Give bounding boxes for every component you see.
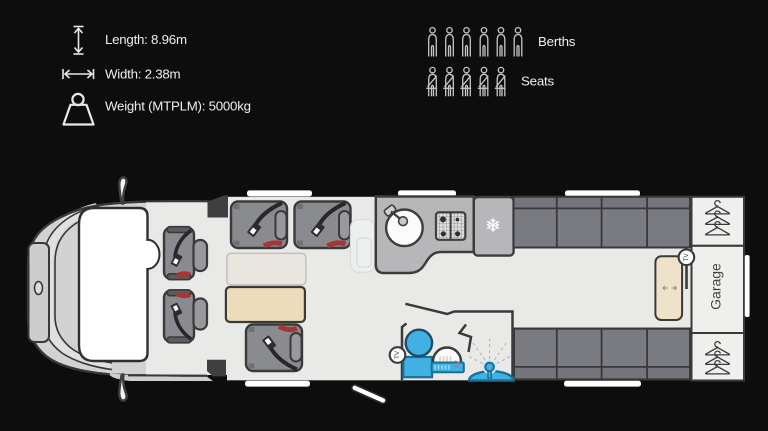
- svg-text:Berths: Berths: [538, 34, 576, 49]
- svg-text:TV: TV: [394, 350, 401, 359]
- svg-text:Seats: Seats: [521, 74, 555, 89]
- svg-text:TV: TV: [683, 252, 690, 261]
- svg-text:Garage: Garage: [708, 263, 724, 310]
- svg-text:Length: 8.96m: Length: 8.96m: [105, 32, 187, 47]
- svg-text:Width: 2.38m: Width: 2.38m: [105, 67, 181, 82]
- svg-text:Weight (MTPLM): 5000kg: Weight (MTPLM): 5000kg: [105, 99, 251, 114]
